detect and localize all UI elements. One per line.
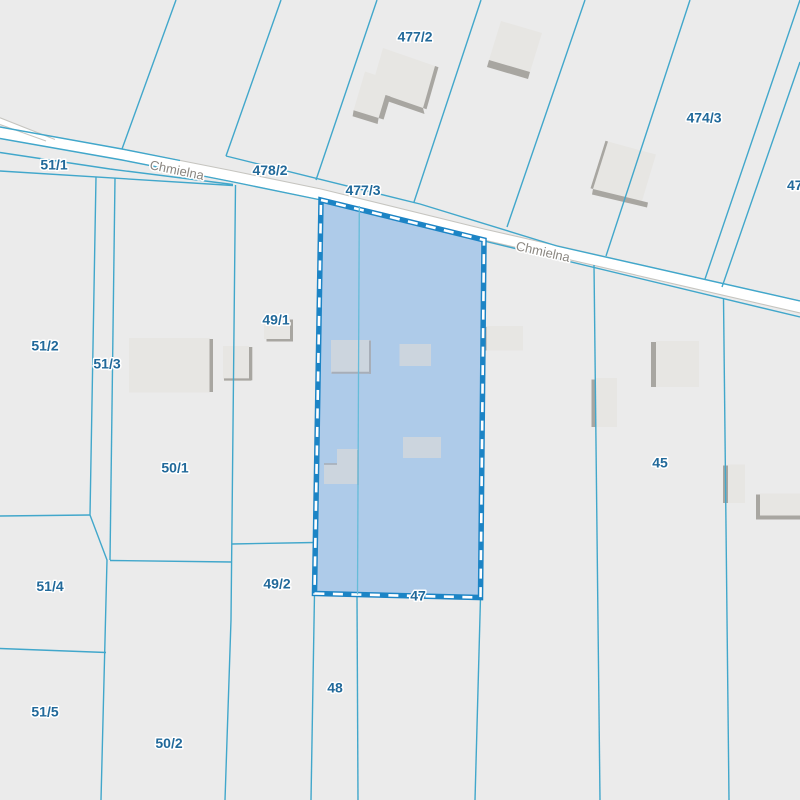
svg-text:48: 48 <box>327 680 343 696</box>
svg-text:474/3: 474/3 <box>686 110 721 126</box>
svg-text:51/4: 51/4 <box>36 578 63 594</box>
svg-text:51/3: 51/3 <box>93 356 120 372</box>
svg-text:477/3: 477/3 <box>345 182 380 198</box>
svg-text:49/2: 49/2 <box>263 576 290 592</box>
svg-text:478/2: 478/2 <box>252 162 287 178</box>
svg-text:51/5: 51/5 <box>31 704 58 720</box>
svg-text:477/2: 477/2 <box>397 29 432 45</box>
svg-text:45: 45 <box>652 455 668 471</box>
svg-text:50/2: 50/2 <box>155 735 182 751</box>
svg-text:51/1: 51/1 <box>40 157 67 173</box>
svg-text:50/1: 50/1 <box>161 460 188 476</box>
svg-text:51/2: 51/2 <box>31 338 58 354</box>
svg-text:47: 47 <box>410 588 426 604</box>
svg-text:49/1: 49/1 <box>262 312 289 328</box>
svg-text:474/3: 474/3 <box>787 177 800 193</box>
